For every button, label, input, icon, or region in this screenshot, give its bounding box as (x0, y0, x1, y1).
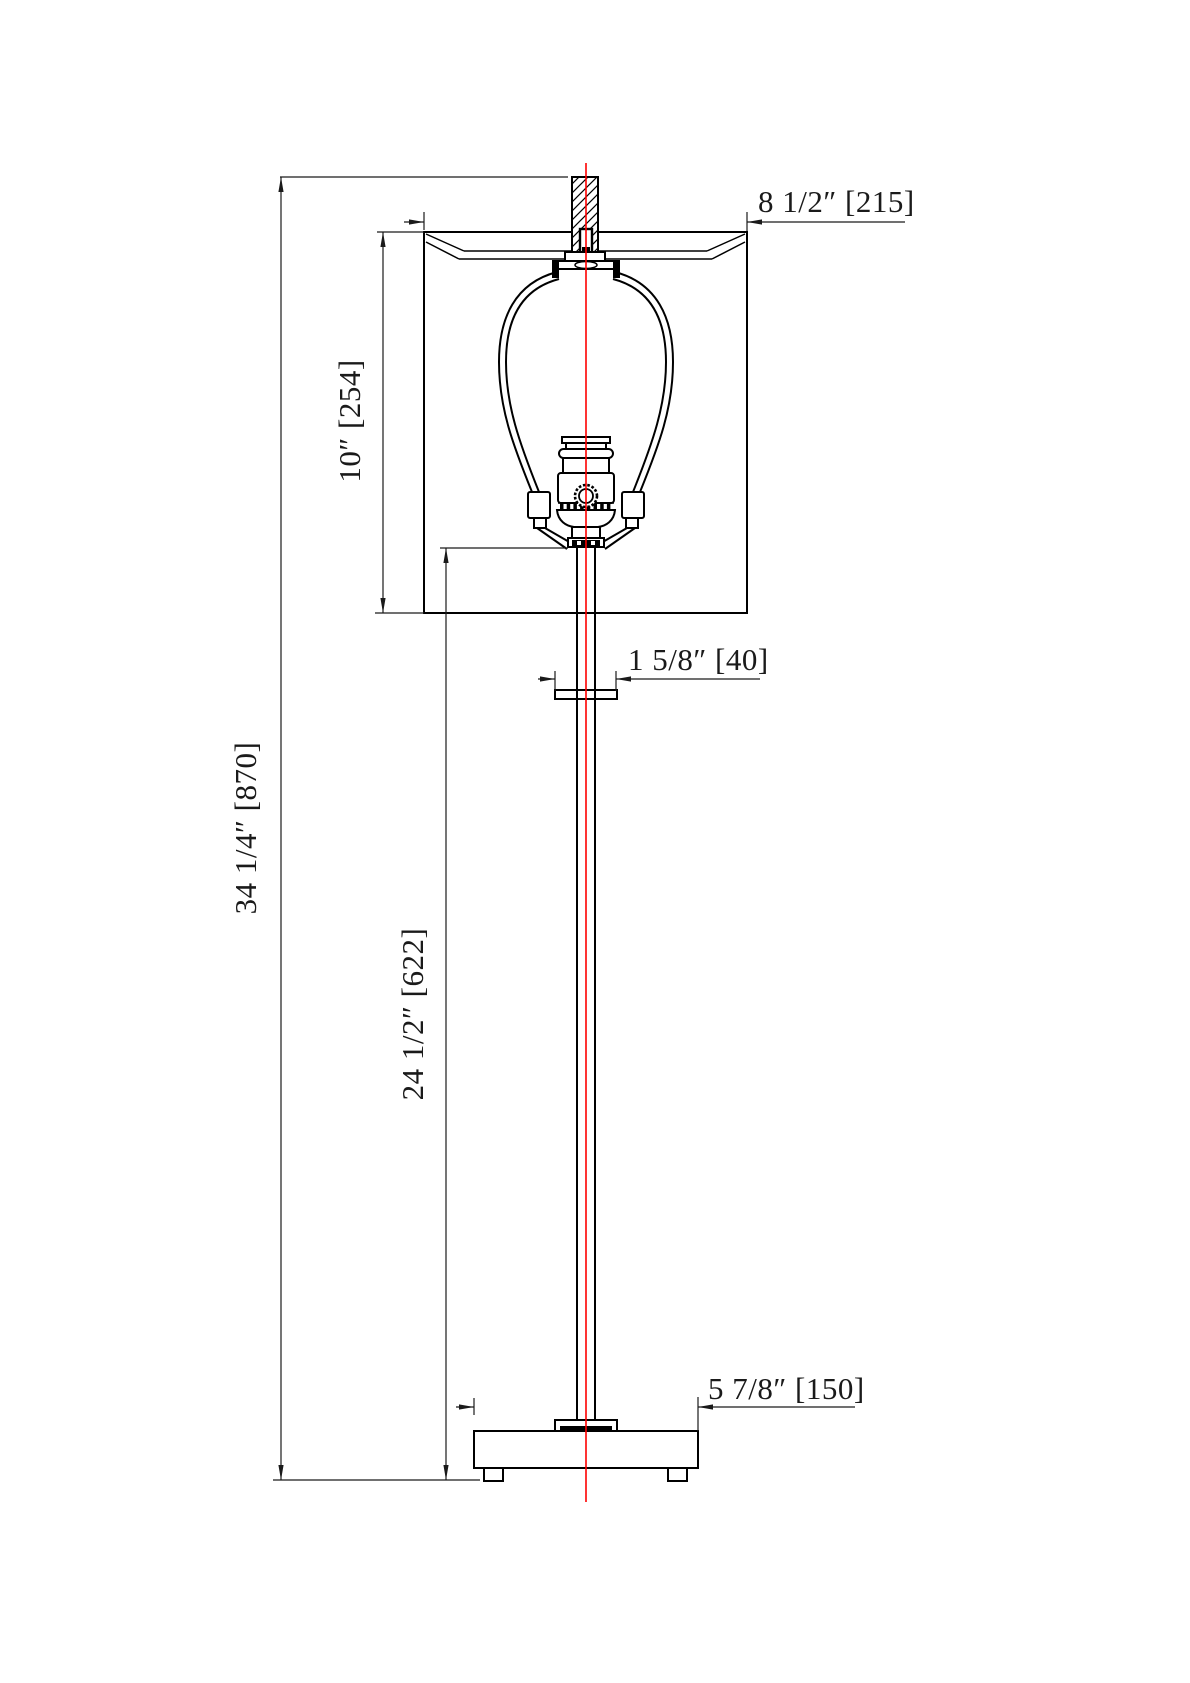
dimension-label-base-width: 5 7/8″ [150] (708, 1371, 865, 1406)
shade-rim-diagonal-left-lower (426, 242, 459, 259)
harp-ferrule-right (622, 492, 644, 518)
dimension-column-height: 24 1/2″ [622] (395, 548, 568, 1480)
arrow-right (459, 1404, 474, 1409)
dimension-overall-height: 34 1/4″ [870] (228, 177, 568, 1480)
yoke-end-cap-right (613, 260, 620, 278)
harp-ferrule-left (528, 492, 550, 518)
washer-plate (565, 252, 605, 261)
saddle-nut-highlight-left (577, 541, 581, 545)
shade-rim-diagonal-left-upper (426, 234, 464, 251)
arrow-up (380, 232, 385, 247)
dimension-label-shade-height: 10″ [254] (332, 359, 367, 482)
dimension-label-overall-height: 34 1/4″ [870] (228, 742, 263, 915)
shade-rim-diagonal-right-upper (707, 234, 745, 251)
arrow-up (278, 177, 283, 192)
arrow-up (443, 548, 448, 563)
shade-rim-diagonal-right-lower (712, 242, 745, 259)
harp-left-inner (506, 279, 559, 492)
base-foot-right (668, 1468, 687, 1481)
arrow-down (380, 598, 385, 613)
dimension-shade-height: 10″ [254] (332, 232, 424, 613)
lamp-technical-drawing: 34 1/4″ [870] 10″ [254] 8 1/2″ [215] 1 5… (0, 0, 1190, 1683)
finial-rod (572, 177, 598, 256)
arrow-right (540, 676, 555, 681)
dimension-collar-width: 1 5/8″ [40] (538, 642, 769, 691)
arrow-down (278, 1465, 283, 1480)
arrow-left (616, 676, 631, 681)
dimension-base-width: 5 7/8″ [150] (456, 1371, 865, 1431)
dimension-label-shade-width: 8 1/2″ [215] (758, 184, 915, 219)
dimension-label-collar-width: 1 5/8″ [40] (628, 642, 769, 677)
dimension-label-column-height: 24 1/2″ [622] (395, 928, 430, 1101)
harp-right-inner (613, 279, 666, 492)
base-foot-left (484, 1468, 503, 1481)
arrow-left (747, 219, 762, 224)
saddle-nut-highlight-right (591, 541, 595, 545)
arrow-down (443, 1465, 448, 1480)
harp-tube-left (534, 518, 546, 528)
dimension-shade-width: 8 1/2″ [215] (404, 184, 915, 231)
yoke-end-cap-left (552, 260, 559, 278)
drawing-page: 34 1/4″ [870] 10″ [254] 8 1/2″ [215] 1 5… (0, 0, 1190, 1683)
arrow-right (409, 219, 424, 224)
harp-tube-right (626, 518, 638, 528)
